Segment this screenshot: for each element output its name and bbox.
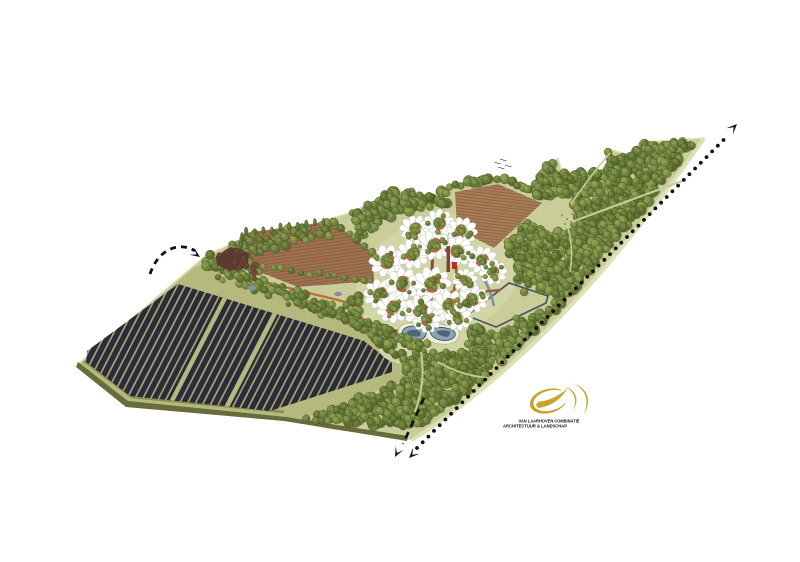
svg-text:ARCHITECTUUR & LANDSCHAP: ARCHITECTUUR & LANDSCHAP (503, 424, 567, 429)
